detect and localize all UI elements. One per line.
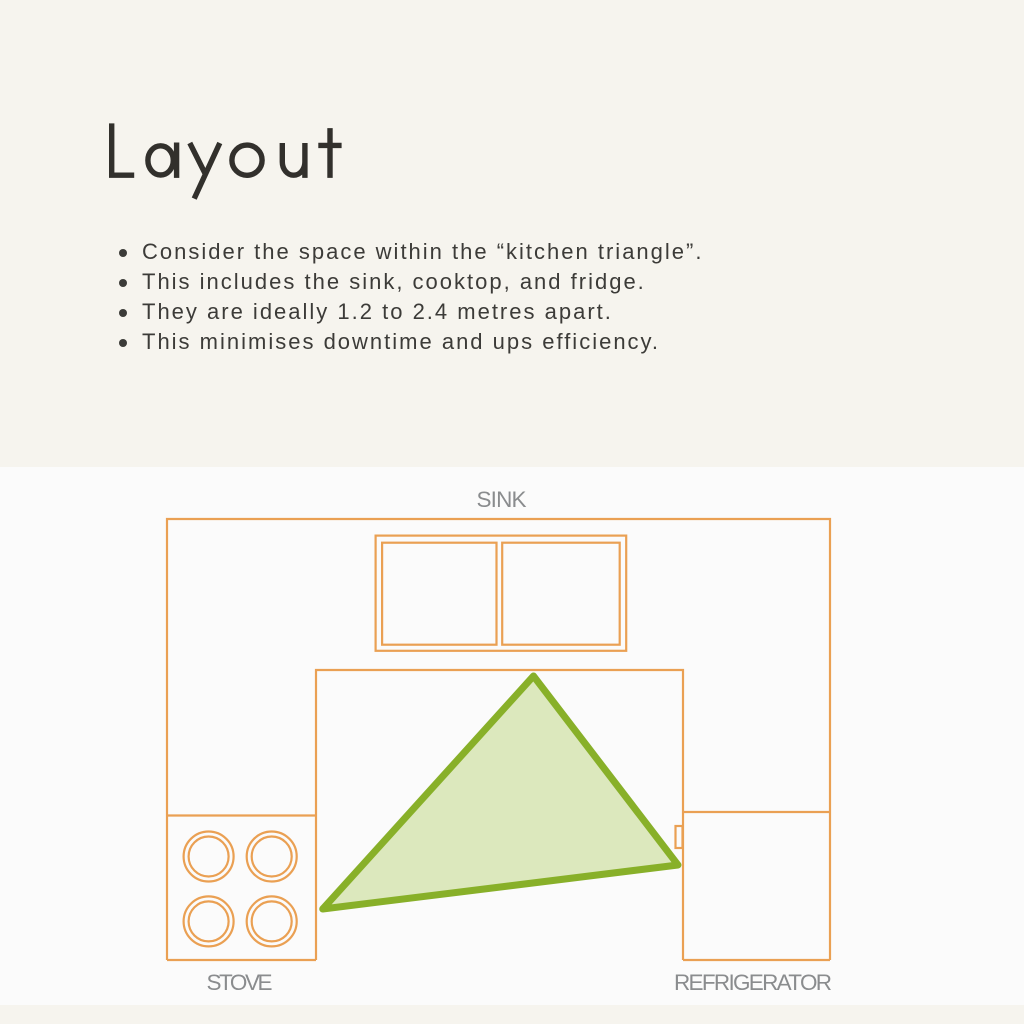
svg-text:SINK: SINK bbox=[477, 487, 527, 512]
svg-text:STOVE: STOVE bbox=[207, 970, 273, 995]
svg-text:REFRIGERATOR: REFRIGERATOR bbox=[674, 970, 832, 995]
